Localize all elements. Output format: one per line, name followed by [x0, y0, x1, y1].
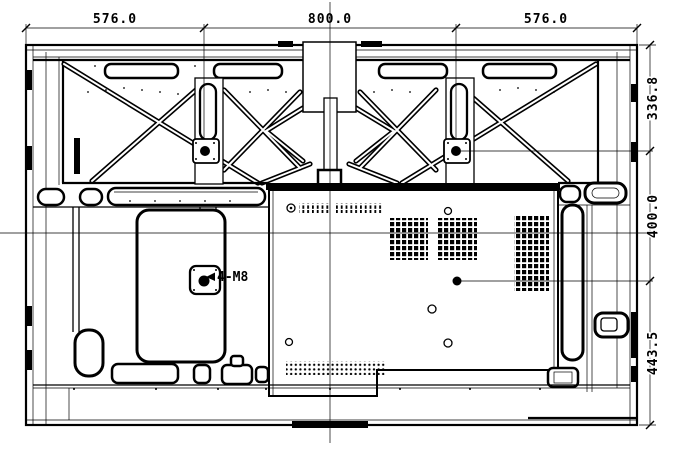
vent-grid-3: [514, 215, 549, 291]
electronics-compartment: [266, 183, 560, 396]
top-edge-clip-right: [361, 41, 382, 47]
center-channel: [324, 98, 337, 170]
dim-top-left-label: 576.0: [93, 12, 137, 27]
rail-slot-long: [108, 188, 265, 205]
vent-dot-row: [286, 361, 385, 375]
right-cutout: [595, 313, 628, 337]
rear-view-drawing: 576.0 800.0 576.0 336.8 400.0 443.5 4-M8: [0, 0, 683, 455]
top-slot-2: [214, 64, 282, 78]
dim-right-upper-label: 336.8: [646, 76, 661, 120]
right-channel: [562, 205, 583, 360]
vesa-slot-left: [200, 84, 216, 140]
rail-slot-1: [38, 189, 64, 205]
vent-grid-2: [438, 218, 477, 260]
dim-top-right-label: 576.0: [524, 12, 568, 27]
vesa-slot-right: [451, 84, 467, 140]
left-bottom-slot: [75, 330, 103, 376]
dim-right-lower-label: 443.5: [646, 331, 661, 375]
left-rib-mark: [74, 138, 80, 174]
rail-slot-2: [80, 189, 102, 205]
vent-dash-row-right: [334, 203, 384, 213]
top-slot-1: [105, 64, 178, 78]
vent-grid-1: [389, 218, 428, 260]
technical-drawing-canvas: 576.0 800.0 576.0 336.8 400.0 443.5 4-M8: [0, 0, 683, 455]
top-edge-clip-left: [278, 41, 293, 47]
dim-right-middle-label: 400.0: [646, 194, 661, 238]
vesa-holes-label: 4-M8: [217, 270, 248, 285]
vesa-hole-top-right: [451, 146, 461, 156]
center-hook: [318, 170, 341, 185]
compartment-top-bar: [266, 183, 560, 190]
vent-dash-row-left: [299, 203, 329, 213]
vesa-hole-top-left: [200, 146, 210, 156]
top-slot-3: [379, 64, 447, 78]
top-slot-4: [483, 64, 556, 78]
vesa-hole-bottom-right: [453, 277, 462, 286]
